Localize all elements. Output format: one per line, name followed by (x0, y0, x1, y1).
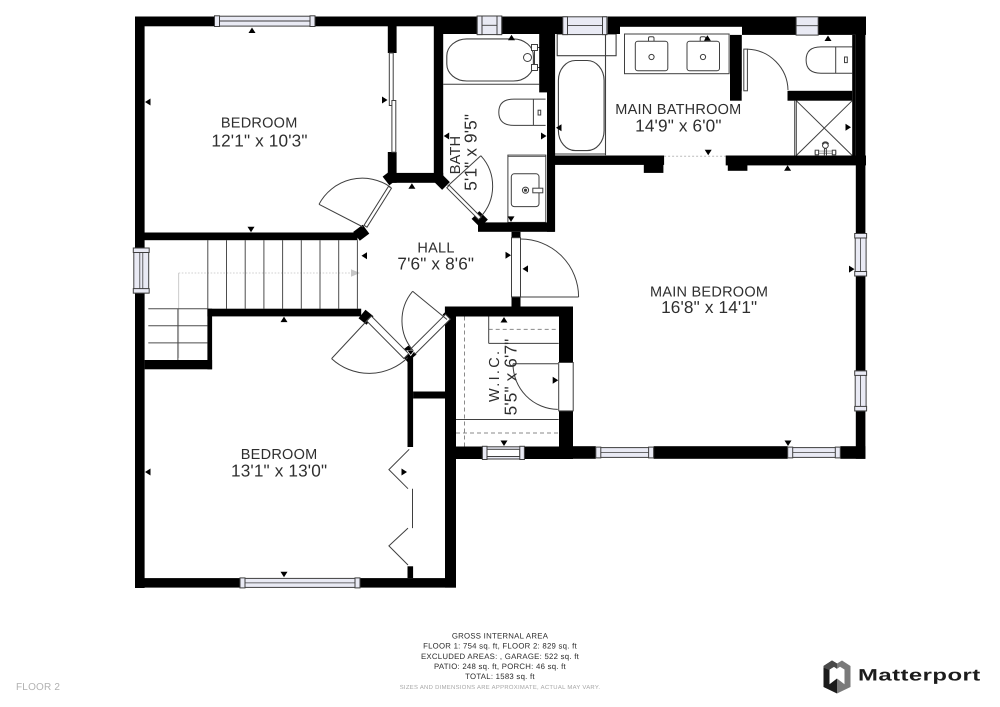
svg-text:16'8" x 14'1": 16'8" x 14'1" (661, 297, 757, 317)
svg-text:PATIO: 248 sq. ft, PORCH: 46 s: PATIO: 248 sq. ft, PORCH: 46 sq. ft (434, 662, 567, 671)
svg-text:GROSS INTERNAL AREA: GROSS INTERNAL AREA (452, 631, 549, 640)
svg-text:TOTAL: 1583 sq. ft: TOTAL: 1583 sq. ft (465, 672, 535, 681)
svg-text:5'1" x 9'5": 5'1" x 9'5" (461, 114, 481, 191)
svg-text:Matterport: Matterport (858, 667, 981, 685)
svg-text:FLOOR 1: 754 sq. ft, FLOOR 2:: FLOOR 1: 754 sq. ft, FLOOR 2: 829 sq. ft (423, 642, 577, 651)
svg-text:13'1" x 13'0": 13'1" x 13'0" (231, 461, 327, 481)
svg-text:12'1" x 10'3": 12'1" x 10'3" (211, 130, 307, 150)
svg-text:14'9" x 6'0": 14'9" x 6'0" (635, 116, 722, 136)
svg-text:5'5" x 6'7": 5'5" x 6'7" (501, 339, 521, 416)
svg-text:FLOOR 2: FLOOR 2 (16, 682, 60, 693)
svg-text:7'6" x 8'6": 7'6" x 8'6" (397, 253, 474, 273)
svg-text:BEDROOM: BEDROOM (221, 116, 298, 132)
svg-text:SIZES AND DIMENSIONS ARE APPRO: SIZES AND DIMENSIONS ARE APPROXIMATE, AC… (400, 684, 601, 691)
svg-text:EXCLUDED AREAS: , GARAGE: 522: EXCLUDED AREAS: , GARAGE: 522 sq. ft (421, 652, 580, 661)
